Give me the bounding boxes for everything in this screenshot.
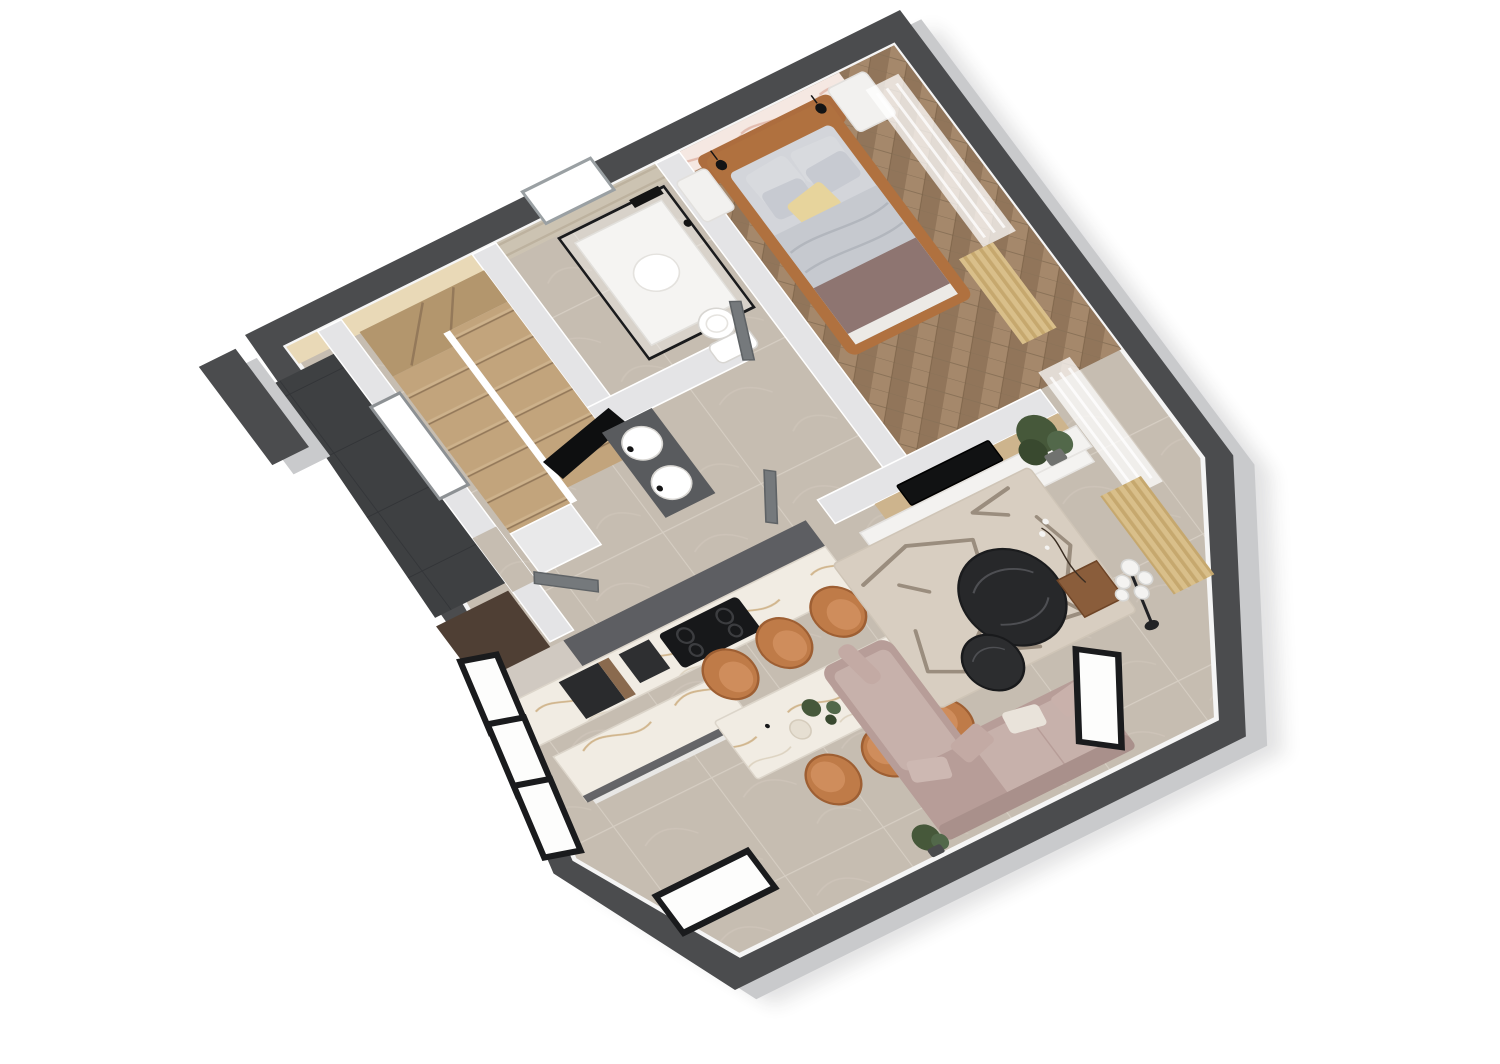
bedroom-door — [764, 470, 777, 524]
plan-projection — [173, 0, 1427, 1049]
floor-plan-svg — [0, 0, 1500, 1064]
floor-plan-render — [0, 0, 1500, 1064]
chamfer-window — [1076, 649, 1122, 747]
